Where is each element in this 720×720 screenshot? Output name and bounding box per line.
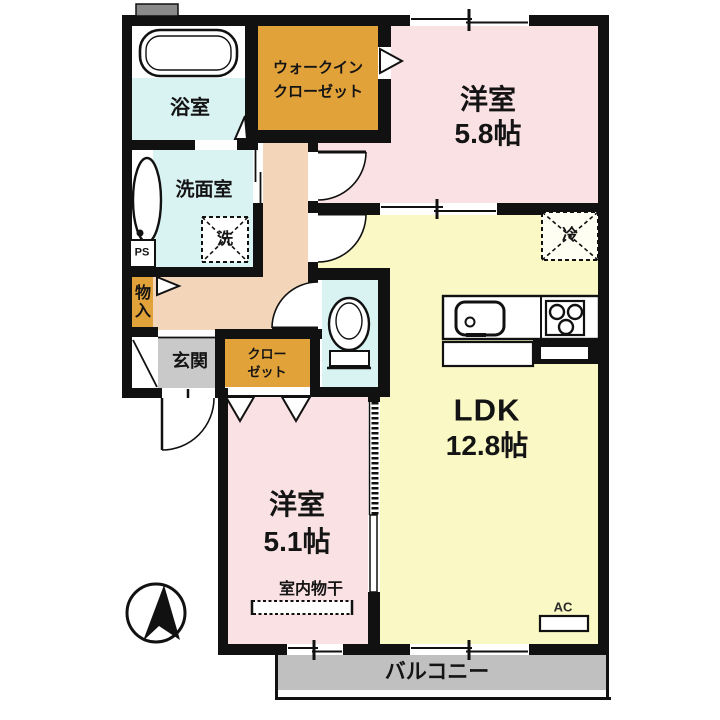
indoor-drying-rod [252, 600, 352, 615]
hallway [263, 143, 308, 273]
walkin-closet-label: ウォークイン [273, 61, 363, 76]
sink-icon [133, 158, 161, 242]
balcony-label: バルコニー [385, 662, 490, 683]
kitchen-counter-icon [443, 296, 599, 366]
toilet-icon [327, 298, 371, 368]
room-walkin-closet [258, 26, 378, 132]
ldk-size: 12.8帖 [446, 432, 529, 460]
bedroom2-label: 洋室 [269, 491, 325, 519]
bedroom1-size: 5.8帖 [455, 120, 522, 148]
pipe-space-label: PS [135, 248, 150, 259]
sliding-partition [368, 402, 380, 592]
fridge-symbol-label: 冷 [562, 228, 578, 244]
washroom-label: 洗面室 [175, 181, 232, 200]
floor-plan-graphics [0, 0, 720, 720]
bedroom1-label: 洋室 [460, 86, 516, 114]
kitchen-sink-icon [456, 302, 504, 335]
compass-icon [127, 584, 185, 642]
stove-icon [546, 301, 584, 335]
ldk-label: LDK [454, 395, 521, 426]
entrance-label: 玄関 [172, 352, 208, 370]
bedroom2-size: 5.1帖 [264, 528, 331, 556]
floor-plan: 浴室 ウォークイン クローゼット 洋室 5.8帖 洗面室 洗 PS 物入 玄関 … [0, 0, 720, 720]
bathroom-label: 浴室 [170, 98, 210, 118]
walkin-closet-label: クローゼット [273, 85, 363, 100]
closet-label: クロー [247, 348, 286, 361]
closet-label: ゼット [247, 366, 286, 379]
small-window [136, 4, 178, 16]
ac-label: AC [554, 601, 573, 614]
ac-slot [540, 616, 588, 631]
bathtub-icon [140, 30, 237, 76]
storage-label: 物入 [132, 284, 148, 320]
indoor-drying-label: 室内物干 [279, 582, 343, 598]
washer-symbol-label: 洗 [217, 232, 233, 248]
